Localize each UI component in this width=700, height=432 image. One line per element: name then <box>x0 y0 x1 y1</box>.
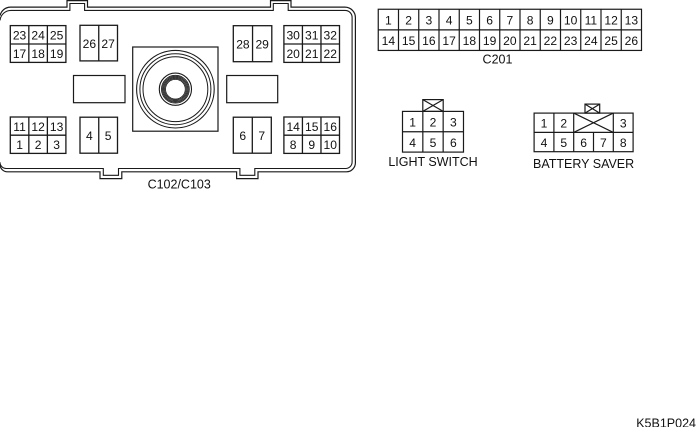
svg-text:C102/C103: C102/C103 <box>148 178 211 192</box>
svg-text:3: 3 <box>620 117 627 131</box>
svg-text:6: 6 <box>239 129 246 143</box>
svg-text:26: 26 <box>83 37 97 51</box>
svg-text:15: 15 <box>305 120 319 134</box>
svg-text:23: 23 <box>564 34 578 48</box>
svg-text:7: 7 <box>258 129 265 143</box>
svg-text:4: 4 <box>86 129 93 143</box>
svg-text:25: 25 <box>604 34 618 48</box>
svg-text:1: 1 <box>16 138 23 152</box>
svg-text:20: 20 <box>503 34 517 48</box>
svg-text:4: 4 <box>541 136 548 150</box>
svg-text:21: 21 <box>305 47 319 61</box>
svg-text:25: 25 <box>50 29 64 43</box>
svg-text:K5B1P024: K5B1P024 <box>636 416 696 427</box>
svg-text:5: 5 <box>466 13 473 27</box>
svg-text:16: 16 <box>422 34 436 48</box>
svg-text:13: 13 <box>625 13 639 27</box>
svg-text:23: 23 <box>13 29 27 43</box>
svg-text:6: 6 <box>450 136 457 150</box>
svg-text:17: 17 <box>13 47 27 61</box>
svg-text:3: 3 <box>426 13 433 27</box>
svg-text:2: 2 <box>405 13 412 27</box>
svg-text:18: 18 <box>463 34 477 48</box>
svg-text:12: 12 <box>31 120 45 134</box>
svg-text:14: 14 <box>382 34 396 48</box>
svg-text:LIGHT SWITCH: LIGHT SWITCH <box>388 155 477 169</box>
svg-text:32: 32 <box>324 29 338 43</box>
svg-text:2: 2 <box>430 115 437 129</box>
svg-text:28: 28 <box>236 38 250 52</box>
svg-text:22: 22 <box>544 34 558 48</box>
svg-text:5: 5 <box>105 129 112 143</box>
svg-text:10: 10 <box>564 13 578 27</box>
svg-text:1: 1 <box>541 117 548 131</box>
svg-text:3: 3 <box>450 115 457 129</box>
svg-text:6: 6 <box>580 136 587 150</box>
svg-text:15: 15 <box>402 34 416 48</box>
svg-text:16: 16 <box>324 120 338 134</box>
svg-text:27: 27 <box>101 37 115 51</box>
svg-text:19: 19 <box>50 47 64 61</box>
svg-text:20: 20 <box>286 47 300 61</box>
svg-text:21: 21 <box>523 34 537 48</box>
svg-text:24: 24 <box>584 34 598 48</box>
svg-text:12: 12 <box>604 13 618 27</box>
svg-text:14: 14 <box>286 120 300 134</box>
svg-text:17: 17 <box>442 34 456 48</box>
svg-text:11: 11 <box>585 13 598 27</box>
svg-text:22: 22 <box>324 47 338 61</box>
svg-text:19: 19 <box>483 34 497 48</box>
svg-text:2: 2 <box>35 138 42 152</box>
svg-text:6: 6 <box>486 13 493 27</box>
svg-text:8: 8 <box>527 13 534 27</box>
svg-text:5: 5 <box>430 136 437 150</box>
svg-text:31: 31 <box>305 29 319 43</box>
svg-text:30: 30 <box>286 29 300 43</box>
svg-text:18: 18 <box>31 47 45 61</box>
svg-text:13: 13 <box>50 120 64 134</box>
svg-text:8: 8 <box>290 138 297 152</box>
svg-text:29: 29 <box>255 38 269 52</box>
svg-text:9: 9 <box>308 138 315 152</box>
svg-text:5: 5 <box>560 136 567 150</box>
svg-text:7: 7 <box>507 13 514 27</box>
svg-text:2: 2 <box>560 117 567 131</box>
svg-text:1: 1 <box>409 115 416 129</box>
svg-text:11: 11 <box>13 120 26 134</box>
svg-text:24: 24 <box>31 29 45 43</box>
svg-text:26: 26 <box>625 34 639 48</box>
svg-text:C201: C201 <box>483 53 513 67</box>
svg-text:7: 7 <box>600 136 607 150</box>
svg-text:4: 4 <box>446 13 453 27</box>
svg-text:1: 1 <box>385 13 392 27</box>
svg-text:3: 3 <box>53 138 60 152</box>
svg-text:10: 10 <box>324 138 338 152</box>
svg-text:8: 8 <box>620 136 627 150</box>
svg-text:BATTERY SAVER: BATTERY SAVER <box>533 157 634 171</box>
svg-text:9: 9 <box>547 13 554 27</box>
svg-text:4: 4 <box>409 136 416 150</box>
